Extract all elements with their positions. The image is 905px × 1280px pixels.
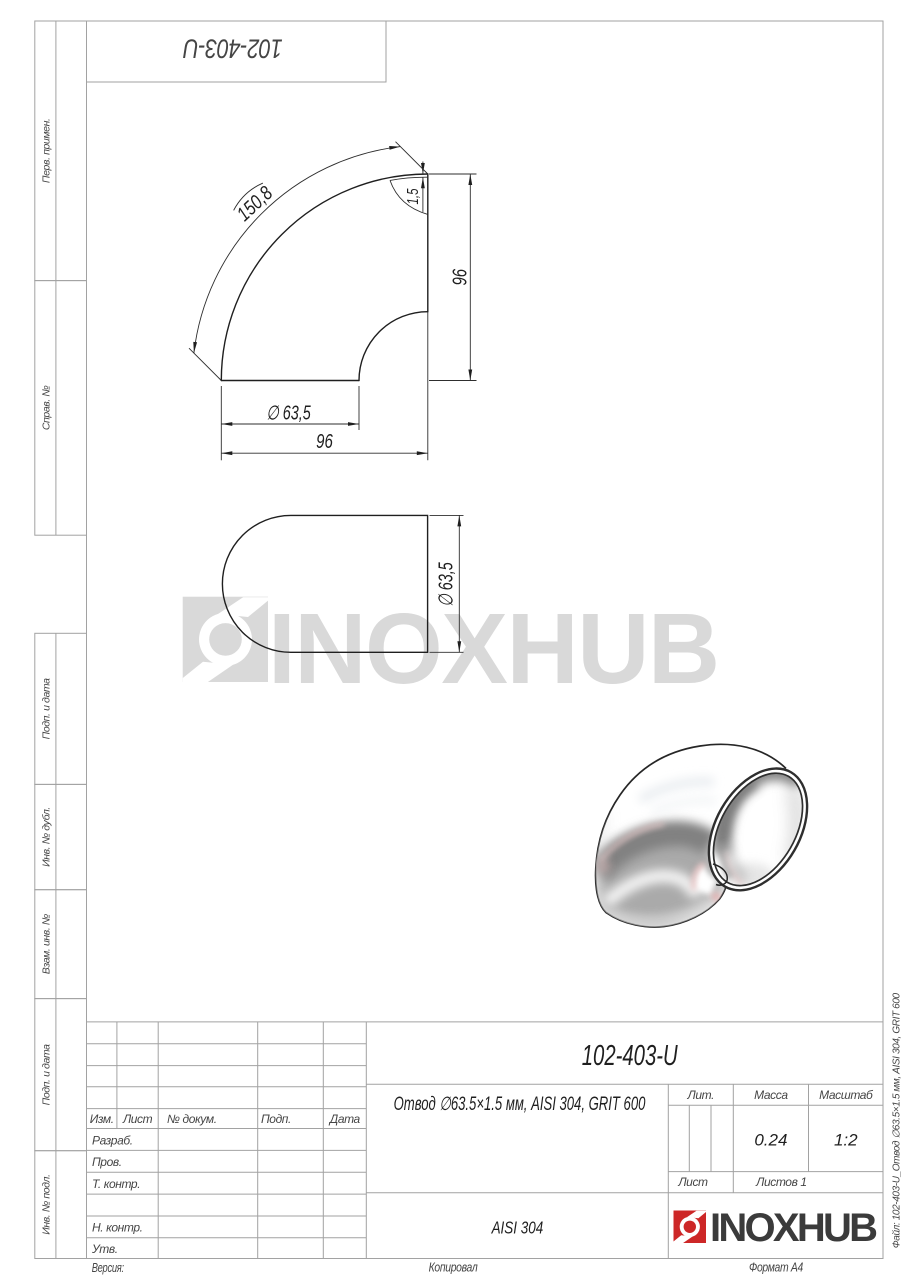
svg-text:1:2: 1:2 <box>834 1131 858 1150</box>
svg-text:96: 96 <box>448 269 471 286</box>
svg-text:Лист: Лист <box>122 1112 153 1126</box>
svg-text:Файл: 102-403-U_Отвод ∅63.5×1.: Файл: 102-403-U_Отвод ∅63.5×1.5 мм, AISI… <box>892 992 903 1248</box>
svg-text:Изм.: Изм. <box>90 1112 114 1126</box>
svg-text:102-403-U: 102-403-U <box>183 33 283 63</box>
svg-text:Утв.: Утв. <box>91 1242 118 1256</box>
svg-text:Масса: Масса <box>754 1088 788 1102</box>
svg-text:102-403-U: 102-403-U <box>582 1040 679 1072</box>
svg-text:Взам. инв. №: Взам. инв. № <box>41 914 53 974</box>
svg-text:Т. контр.: Т. контр. <box>92 1177 140 1191</box>
svg-text:96: 96 <box>316 430 333 453</box>
svg-text:№ докум.: № докум. <box>167 1112 217 1126</box>
svg-text:Дата: Дата <box>328 1112 361 1126</box>
svg-text:Подп. и дата: Подп. и дата <box>41 678 53 739</box>
svg-text:Перв. примен.: Перв. примен. <box>41 119 53 184</box>
svg-text:Пров.: Пров. <box>92 1155 122 1169</box>
svg-text:Разраб.: Разраб. <box>92 1134 133 1148</box>
svg-text:0.24: 0.24 <box>754 1131 787 1150</box>
svg-text:Лит.: Лит. <box>687 1088 715 1102</box>
svg-text:Подп.: Подп. <box>261 1112 291 1126</box>
svg-text:Подп. и дата: Подп. и дата <box>41 1044 53 1105</box>
svg-text:1,5: 1,5 <box>403 188 421 204</box>
svg-text:Инв. № подл.: Инв. № подл. <box>41 1174 53 1234</box>
svg-text:Версия:: Версия: <box>92 1262 124 1276</box>
svg-text:Масштаб: Масштаб <box>819 1088 874 1102</box>
svg-text:Копировал: Копировал <box>429 1260 478 1274</box>
svg-text:INOXHUB: INOXHUB <box>268 593 719 705</box>
svg-text:Справ. №: Справ. № <box>41 386 53 431</box>
svg-text:∅ 63,5: ∅ 63,5 <box>434 562 457 607</box>
svg-text:Отвод ∅63.5×1.5 мм, AISI 304,: Отвод ∅63.5×1.5 мм, AISI 304, GRIT 600 <box>394 1094 646 1115</box>
svg-text:Листов 1: Листов 1 <box>755 1175 807 1189</box>
svg-text:INOXHUB: INOXHUB <box>710 1206 877 1250</box>
svg-text:Формат А4: Формат А4 <box>749 1260 804 1274</box>
svg-text:Лист: Лист <box>677 1175 708 1189</box>
svg-text:Инв. № дубл.: Инв. № дубл. <box>41 807 53 867</box>
svg-text:∅ 63,5: ∅ 63,5 <box>266 401 311 424</box>
svg-text:AISI 304: AISI 304 <box>491 1219 544 1238</box>
svg-text:Н. контр.: Н. контр. <box>92 1221 143 1235</box>
